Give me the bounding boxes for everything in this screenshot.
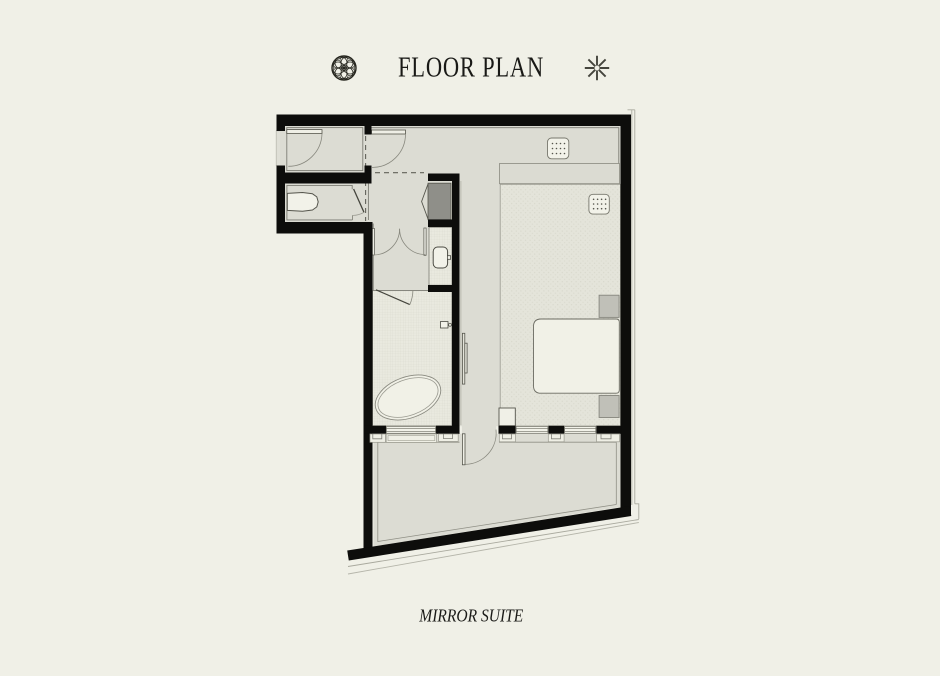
svg-text:FLOOR PLAN: FLOOR PLAN xyxy=(398,53,544,84)
svg-text:MIRROR SUITE: MIRROR SUITE xyxy=(418,605,523,625)
